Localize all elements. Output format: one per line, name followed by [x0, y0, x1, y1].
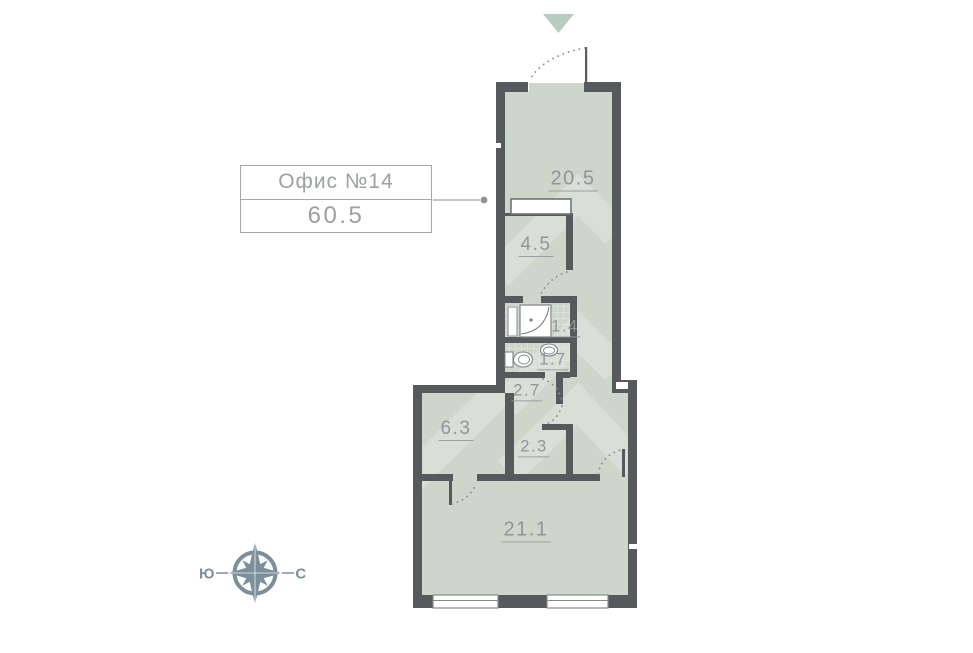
- entrance-door-leaf: [585, 47, 587, 83]
- wall-lower-top: [413, 385, 505, 393]
- room-label-4-5: 4.5: [519, 235, 554, 257]
- floorplan-drawing: [0, 0, 973, 653]
- wall-bottom-c: [608, 595, 637, 608]
- wall-4-5-right: [566, 213, 573, 270]
- wall-6-3-partition: [505, 393, 514, 481]
- door-leaf-6-3: [449, 481, 452, 505]
- room-label-2-3: 2.3: [518, 438, 549, 457]
- wall-right-upper: [612, 82, 621, 380]
- wall-21-1-top-a: [413, 474, 453, 481]
- wall-left-lower: [413, 385, 422, 608]
- unit-total-area: 60.5: [241, 200, 431, 233]
- wall-left-upper: [496, 82, 505, 393]
- wall-1-4-top-a: [505, 296, 523, 303]
- toilet-icon: [505, 352, 533, 367]
- entrance-arrow-icon: [543, 14, 574, 33]
- bath-door-leaf: [508, 307, 517, 336]
- floorplan-canvas: Офис №14 60.5 20.5 4.5 1.4 1.7 2.7 6.3 2…: [0, 0, 973, 653]
- room-label-20-5: 20.5: [549, 169, 598, 192]
- door-leaf-21-1: [622, 449, 625, 477]
- wall-1-7-bottom-a: [505, 372, 545, 378]
- callout-connector: [433, 197, 487, 204]
- wall-2-3-right: [566, 424, 573, 479]
- window-right: [547, 595, 608, 608]
- compass-north-label: С: [295, 566, 306, 583]
- entrance-door-arc: [529, 48, 585, 81]
- shower-icon: [520, 305, 551, 337]
- room-label-2-7: 2.7: [511, 382, 542, 401]
- wardrobe-icon: [511, 199, 571, 214]
- room-label-1-4: 1.4: [549, 318, 580, 337]
- unit-title: Офис №14: [241, 166, 431, 200]
- wall-right-lower: [628, 393, 637, 608]
- compass-icon: [216, 542, 294, 604]
- wall-bottom-b: [498, 595, 547, 608]
- wall-1-4-1-7-divider: [505, 337, 570, 343]
- wall-corridor-stub: [556, 377, 563, 404]
- wall-21-1-top-b: [477, 474, 600, 481]
- wall-bottom-a: [413, 595, 433, 608]
- room-label-6-3: 6.3: [439, 419, 474, 441]
- compass-south-label: Ю: [199, 566, 215, 583]
- room-label-1-7: 1.7: [537, 351, 568, 370]
- unit-info-box: Офис №14 60.5: [240, 165, 432, 233]
- room-label-21-1: 21.1: [502, 520, 551, 543]
- window-left: [433, 595, 498, 608]
